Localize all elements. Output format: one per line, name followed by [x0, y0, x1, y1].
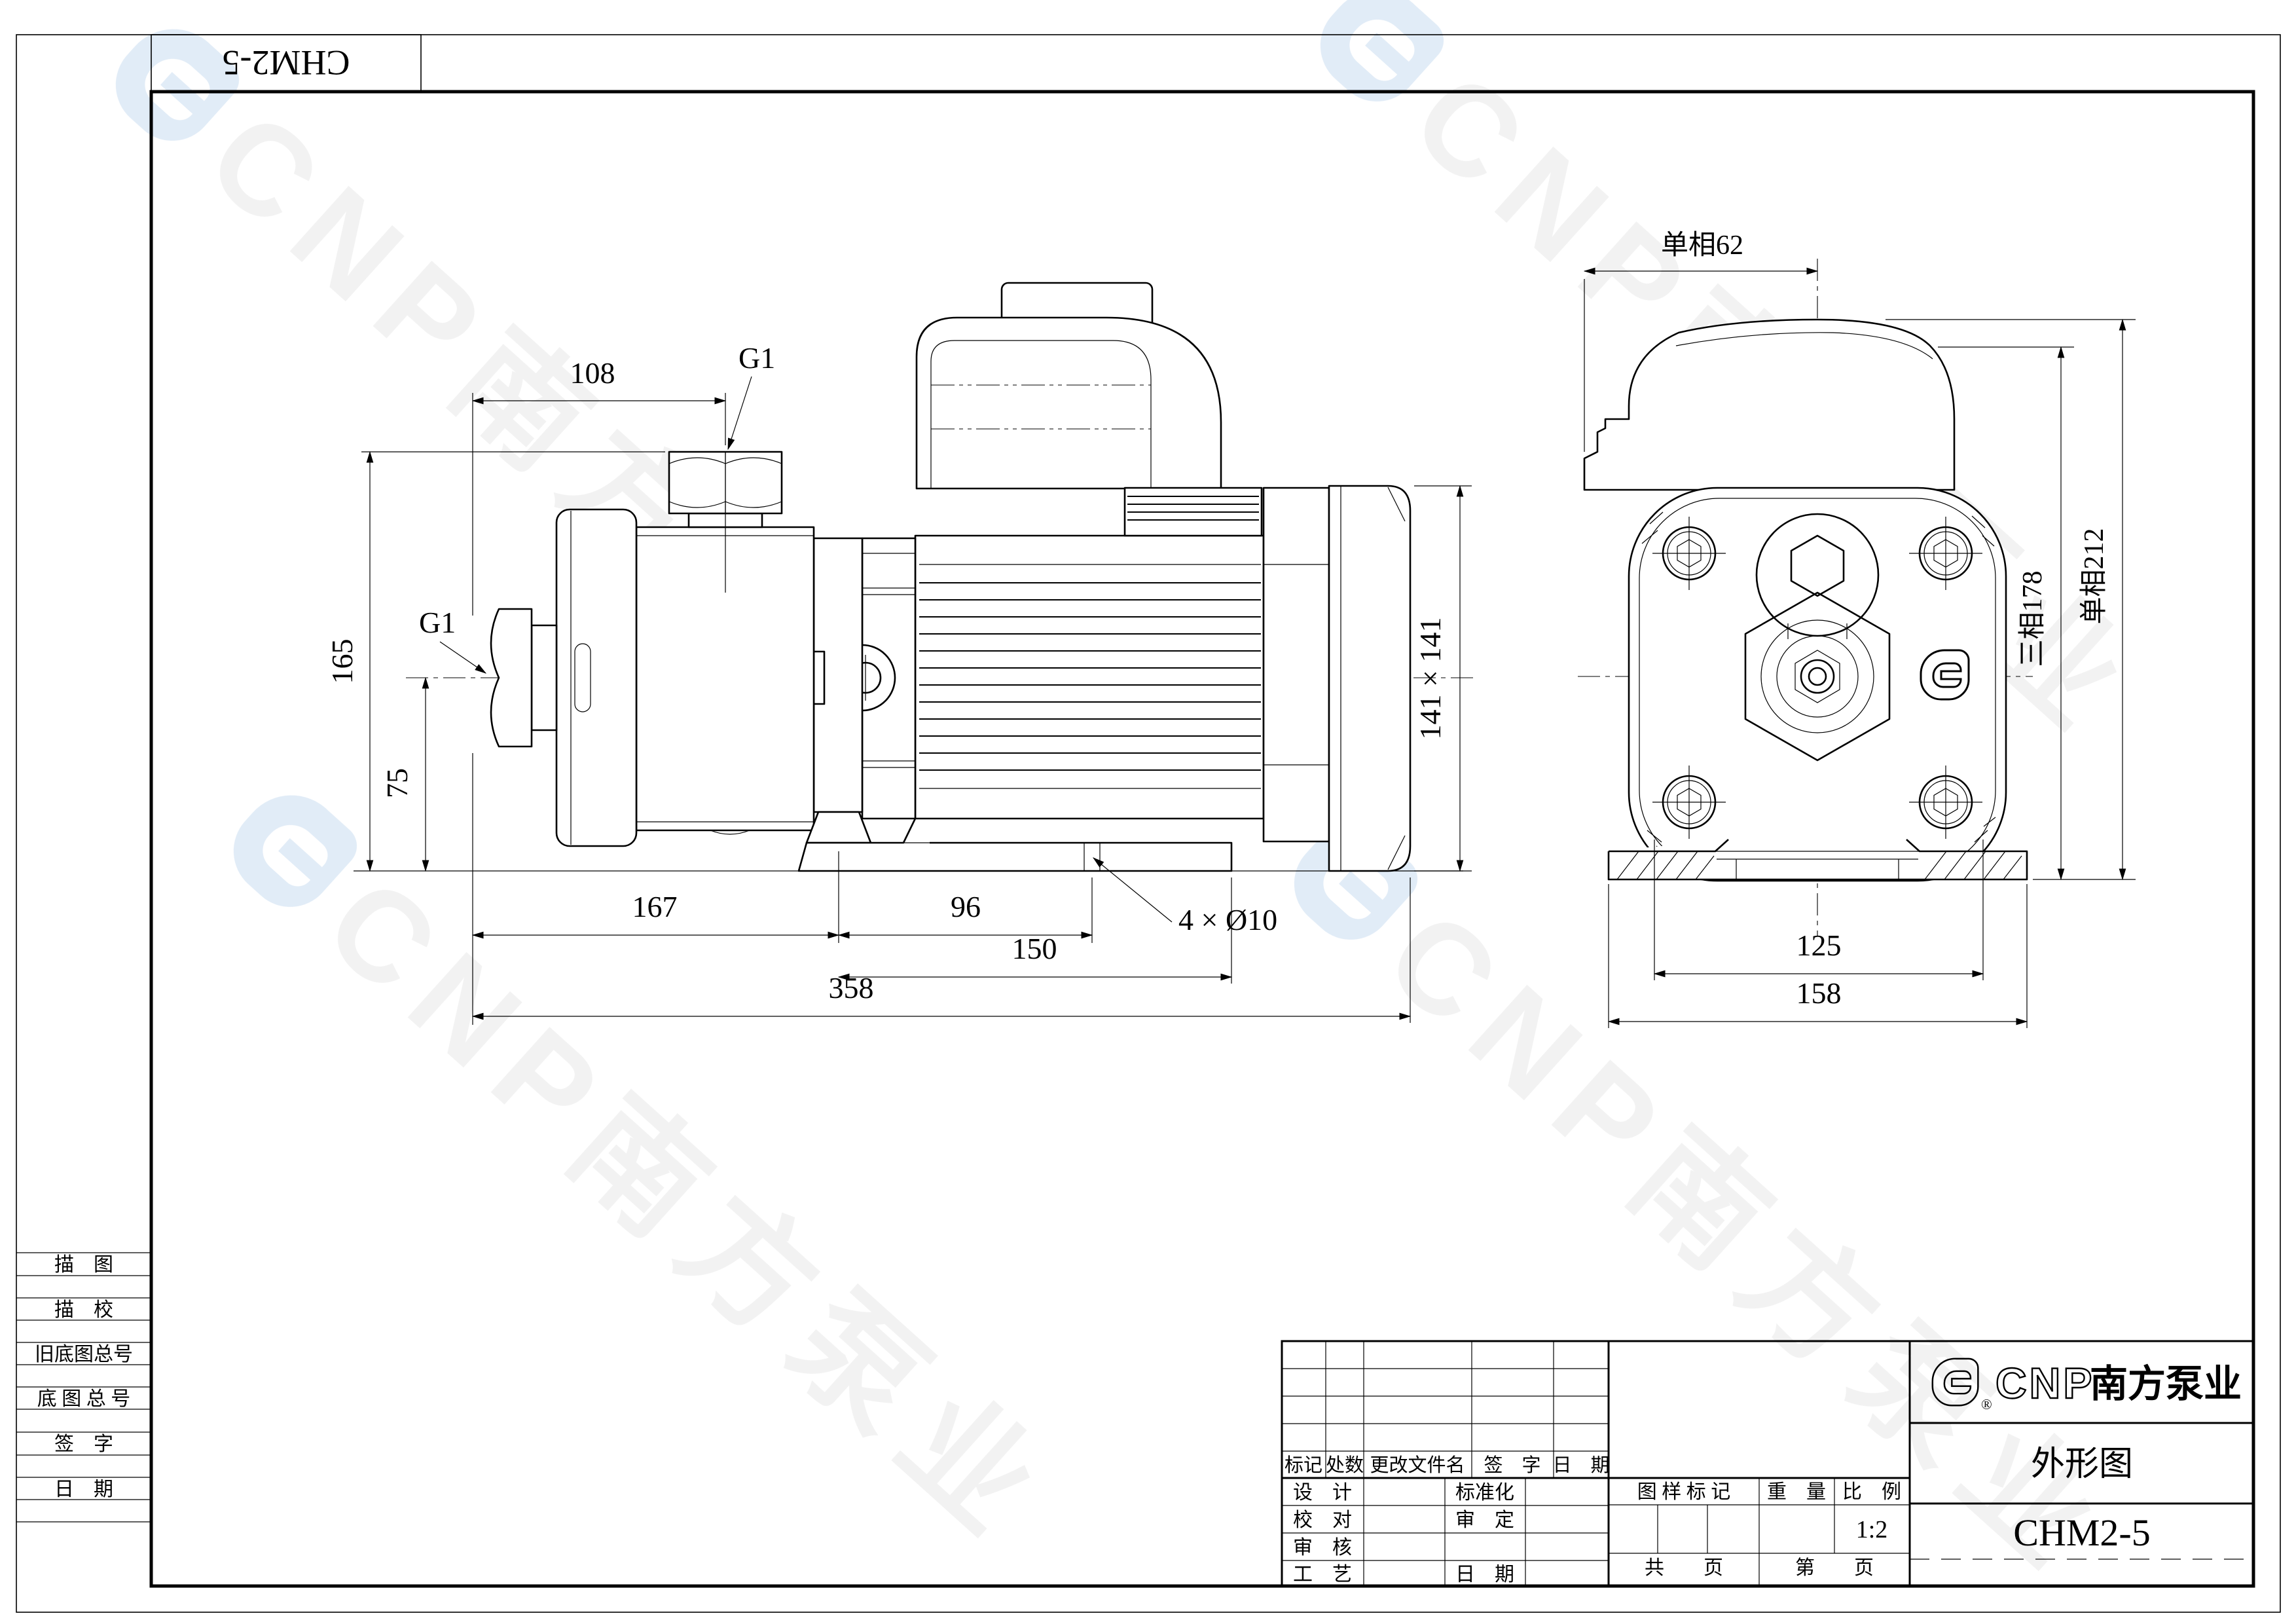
- fan-cover: [1329, 486, 1410, 871]
- dim-75: 75: [380, 768, 414, 798]
- dim-165: 165: [325, 639, 359, 684]
- label-weight: 重 量: [1767, 1481, 1826, 1503]
- sig-check: 校 对: [1293, 1509, 1352, 1531]
- sig-audit: 审 核: [1293, 1537, 1352, 1559]
- motor-end-bracket: [1264, 488, 1329, 841]
- watermark-instance: CNP南方泵业: [202, 763, 1077, 1572]
- label-sample-mark: 图 样 标 记: [1637, 1481, 1731, 1503]
- rev-col-mark: 标记: [1285, 1454, 1322, 1476]
- rev-col-sign: 签 字: [1484, 1454, 1540, 1476]
- sig-approve: 审 定: [1455, 1509, 1514, 1531]
- suction-collar: [532, 625, 556, 730]
- sig-date: 日 期: [1455, 1564, 1514, 1585]
- dim-158: 158: [1796, 976, 1842, 1010]
- motor-body: [915, 536, 1264, 819]
- terminal-box-cover: [917, 318, 1221, 489]
- pump-support-bracket: [807, 812, 871, 843]
- dim-single-phase-212: 单相212: [2079, 528, 2109, 624]
- dim-108: 108: [570, 356, 615, 390]
- rev-col-count: 处数: [1326, 1454, 1364, 1476]
- dim-g1-suction: G1: [419, 606, 456, 639]
- title-block: 标记 处数 更改文件名 签 字 日 期 设 计 标准化 校 对 审 定 审 核 …: [1282, 1341, 2253, 1586]
- brand-cn: 南方泵业: [2090, 1363, 2242, 1405]
- cad-canvas: CNP南方泵业 CNP南方泵业 CNP南方泵业 CNP南方泵业 CHM2-5: [0, 0, 2296, 1624]
- doc-model: CHM2-5: [2013, 1511, 2150, 1554]
- value-scale: 1:2: [1856, 1516, 1888, 1543]
- dim-96: 96: [951, 890, 981, 923]
- dim-150: 150: [1012, 932, 1057, 965]
- sig-standard: 标准化: [1455, 1482, 1514, 1504]
- rev-col-date: 日 期: [1552, 1455, 1609, 1476]
- suction-port: [491, 609, 556, 747]
- dim-141x141: 141 × 141: [1413, 618, 1447, 740]
- mark-weight-scale: 图 样 标 记 重 量 比 例 1:2 共 页 第 页: [1609, 1478, 1910, 1586]
- dim-125: 125: [1796, 929, 1842, 962]
- cnp-logo-watermark-icon: [215, 774, 366, 925]
- pump-head-cap: [556, 509, 636, 846]
- doc-type: 外形图: [2031, 1446, 2133, 1483]
- dim-167: 167: [632, 890, 678, 923]
- pump-flange-ring: [814, 538, 862, 812]
- cnp-logo-watermark-icon: [1302, 0, 1453, 119]
- filing-row-old-no: 旧底图总号: [35, 1344, 133, 1365]
- filing-column: 描 图 描 校 旧底图总号 底 图 总 号 签 字 日 期: [16, 1253, 151, 1522]
- revision-table: 标记 处数 更改文件名 签 字 日 期: [1282, 1341, 1610, 1478]
- sig-craft: 工 艺: [1293, 1564, 1352, 1585]
- corner-code-text: CHM2-5: [222, 43, 350, 83]
- label-page-no: 第 页: [1795, 1557, 1874, 1579]
- dim-g1-discharge: G1: [738, 341, 775, 375]
- drawing-sheet: CNP南方泵业 CNP南方泵业 CNP南方泵业 CNP南方泵业 CHM2-5: [0, 0, 2296, 1624]
- dim-358: 358: [829, 971, 874, 1005]
- dim-three-phase-178: 三相178: [2018, 570, 2048, 667]
- watermark-text: CNP南方泵业: [300, 851, 1078, 1572]
- dim-holes: 4 × Ø10: [1178, 903, 1277, 936]
- filing-row-date: 日 期: [54, 1479, 113, 1500]
- brand-en: CNP: [1995, 1359, 2094, 1407]
- motor-top-pad: [1125, 488, 1262, 536]
- rev-col-file: 更改文件名: [1370, 1454, 1465, 1476]
- registered-mark: ®: [1981, 1396, 1992, 1412]
- cnp-logo-watermark-icon: [98, 8, 248, 158]
- filing-row-trace-check: 描 校: [54, 1299, 113, 1321]
- label-scale: 比 例: [1842, 1481, 1901, 1503]
- label-pages-total: 共 页: [1645, 1557, 1723, 1579]
- dim-single-phase-62: 单相62: [1661, 231, 1743, 261]
- sig-design: 设 计: [1293, 1482, 1352, 1504]
- filing-row-trace: 描 图: [54, 1254, 113, 1276]
- filing-row-base-no: 底 图 总 号: [37, 1388, 131, 1410]
- base-and-feet: [799, 812, 1231, 871]
- filing-row-signature: 签 字: [54, 1433, 113, 1455]
